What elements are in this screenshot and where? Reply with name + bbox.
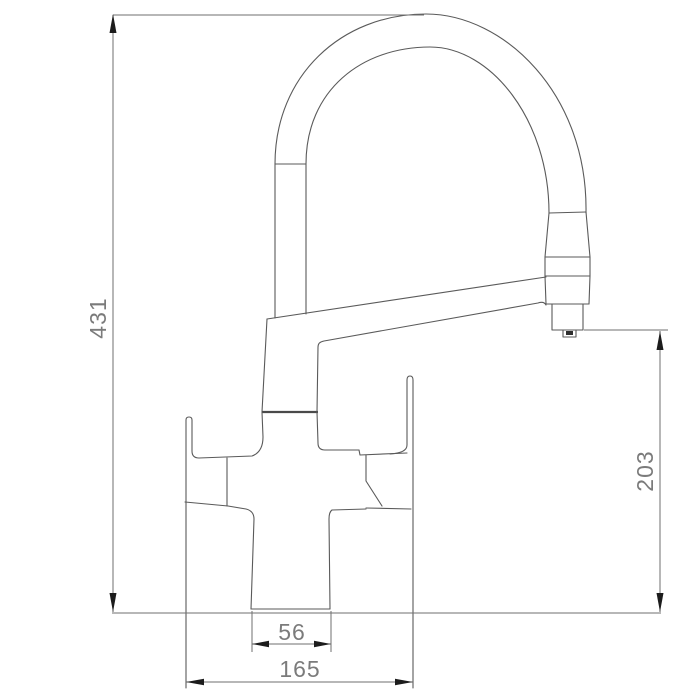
dim-203-label: 203 bbox=[632, 450, 658, 491]
lower-body-left-edge bbox=[251, 519, 254, 609]
left-arm-bottom-edge bbox=[228, 506, 254, 519]
technical-drawing: 431 203 56 bbox=[0, 0, 700, 700]
column-right-fillet-and-right-arm-top bbox=[317, 412, 359, 450]
body-cap-right-edge bbox=[317, 347, 318, 412]
nozzle-block bbox=[552, 304, 583, 330]
arrow-down-icon bbox=[110, 593, 117, 612]
drawing-canvas: 431 203 56 bbox=[0, 0, 700, 700]
dim-outlet-height: 203 bbox=[584, 330, 668, 612]
lower-body-right-edge bbox=[329, 510, 332, 609]
dim-431-label: 431 bbox=[85, 297, 111, 338]
spray-head-lower-right bbox=[589, 276, 590, 304]
body-cap-left-edge bbox=[262, 319, 267, 412]
arrow-down-icon bbox=[657, 593, 664, 612]
right-handle-lever bbox=[390, 376, 413, 688]
spray-head-joint-top bbox=[549, 212, 586, 213]
right-arm-bottom-edge bbox=[332, 509, 366, 510]
right-escutcheon-bottom-edge bbox=[366, 508, 411, 509]
column-left-fillet-and-left-arm-top bbox=[199, 412, 263, 458]
left-handle-lever bbox=[186, 417, 199, 688]
faucet-outline bbox=[185, 14, 590, 688]
arrow-right-icon bbox=[395, 679, 413, 685]
arrow-left-icon bbox=[186, 679, 204, 685]
dim-56-label: 56 bbox=[278, 619, 306, 645]
spout-arm-bottom-edge bbox=[318, 302, 546, 347]
right-escutcheon-inner-edge bbox=[366, 455, 382, 506]
spray-head-lower-left bbox=[545, 276, 546, 304]
spout-outer-curve bbox=[275, 14, 586, 213]
left-escutcheon-bottom-edge bbox=[185, 502, 228, 506]
arrow-up-icon bbox=[657, 331, 664, 350]
dim-overall-width: 165 bbox=[186, 656, 413, 685]
dim-base-width: 56 bbox=[252, 611, 331, 652]
dimensions: 431 203 56 bbox=[85, 14, 668, 685]
arrow-left-icon bbox=[252, 641, 269, 647]
spray-head-collar-left bbox=[545, 213, 549, 257]
spout-inner-curve bbox=[306, 47, 549, 213]
spout-arm-top-edge bbox=[267, 277, 546, 319]
arrow-right-icon bbox=[314, 641, 331, 647]
dim-overall-height: 431 bbox=[85, 14, 661, 613]
dim-165-label: 165 bbox=[279, 656, 320, 682]
arrow-up-icon bbox=[110, 14, 117, 33]
nozzle-outlet-mark bbox=[566, 331, 573, 335]
spray-head-collar-right bbox=[586, 212, 590, 257]
